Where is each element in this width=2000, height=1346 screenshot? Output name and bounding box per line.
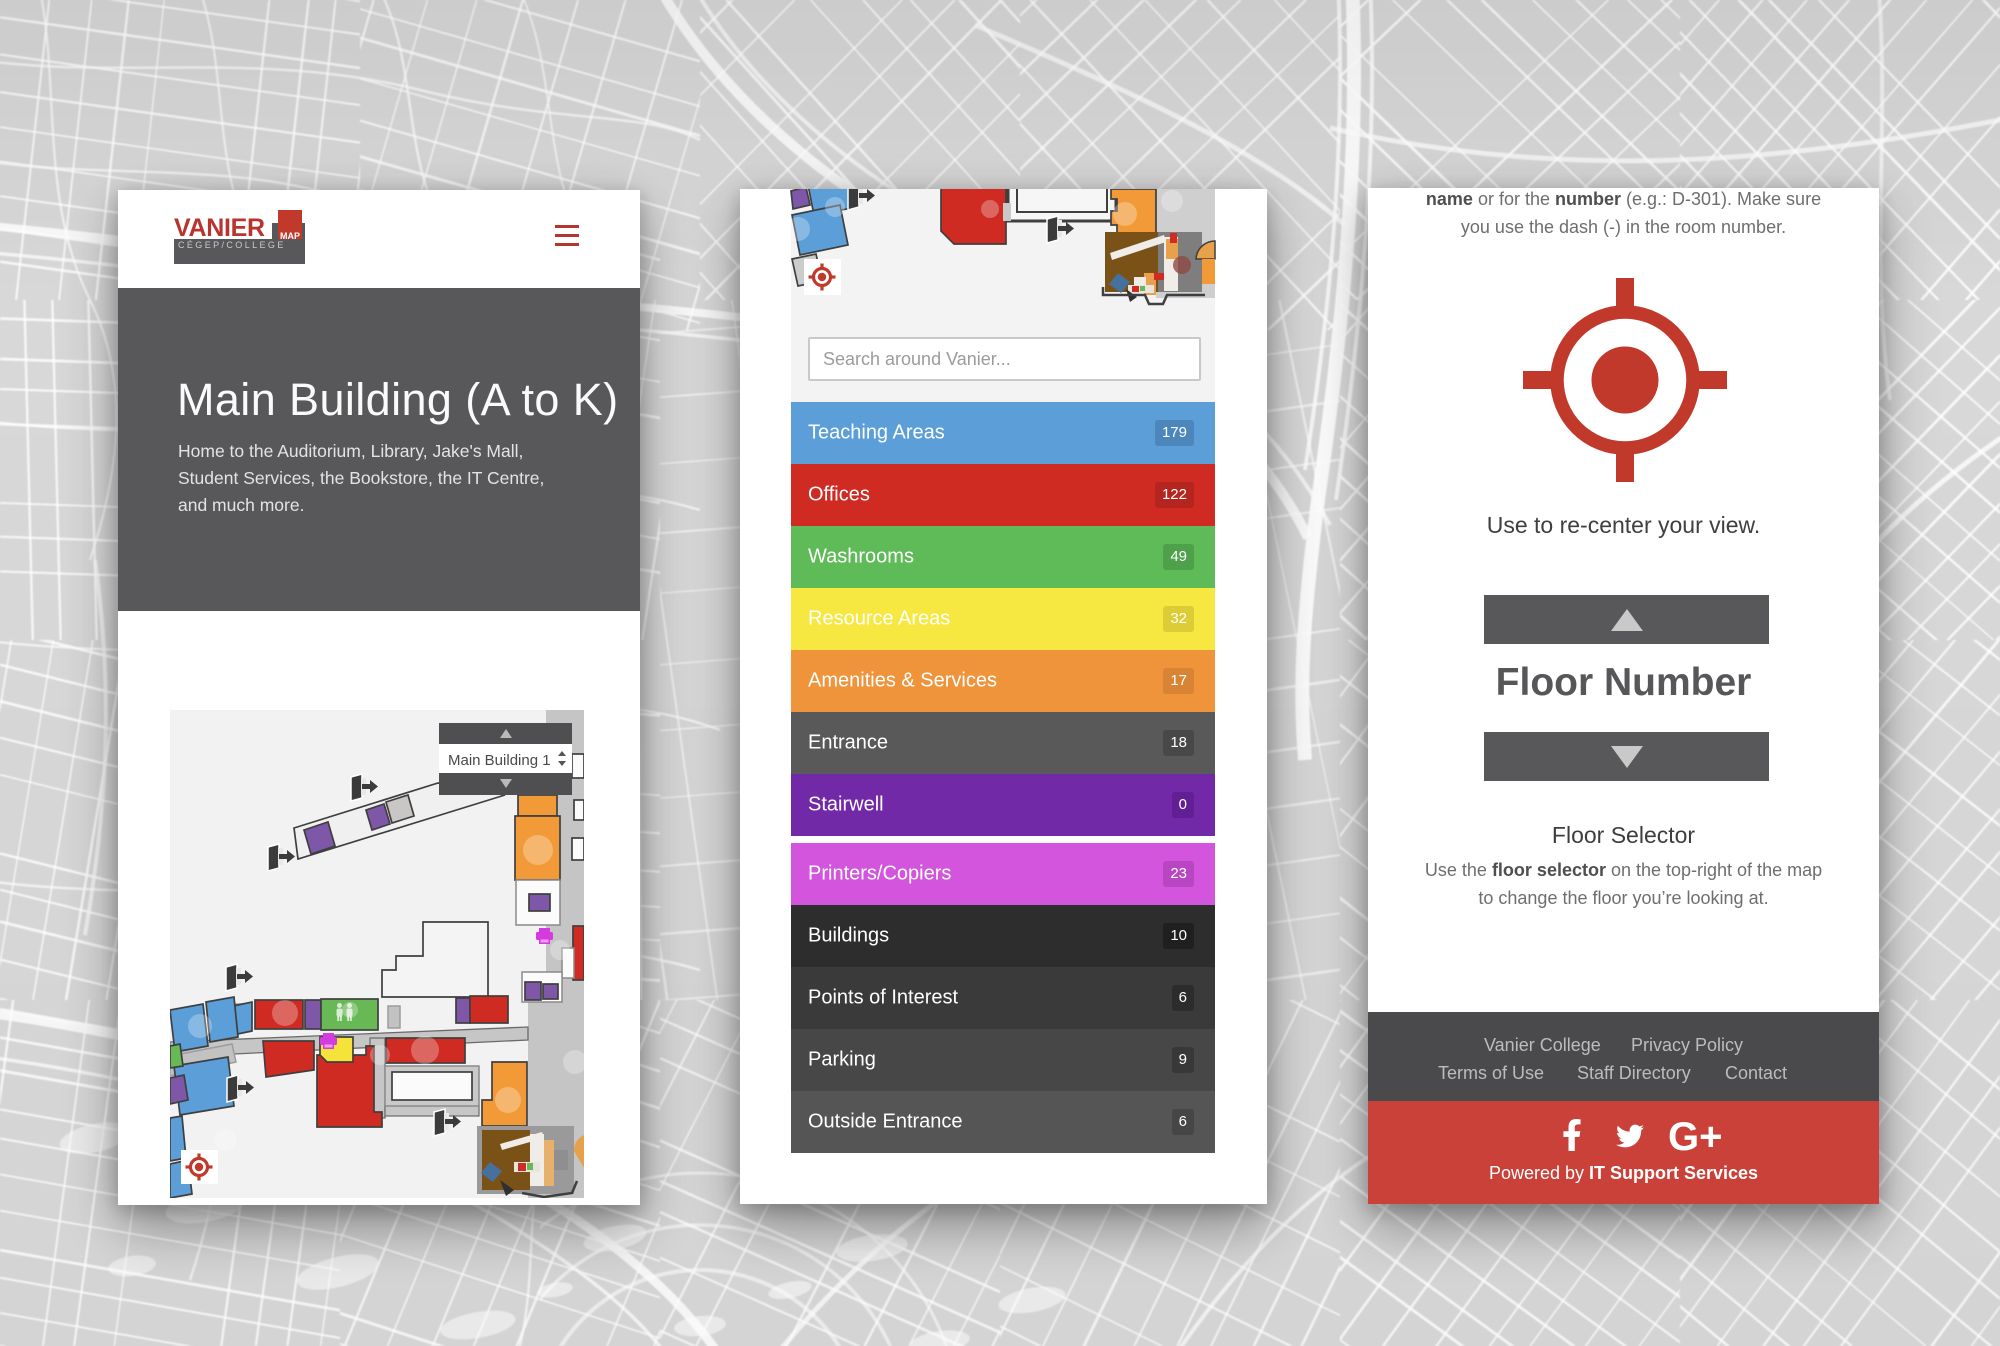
svg-text:Main Building 1: Main Building 1: [448, 752, 551, 769]
